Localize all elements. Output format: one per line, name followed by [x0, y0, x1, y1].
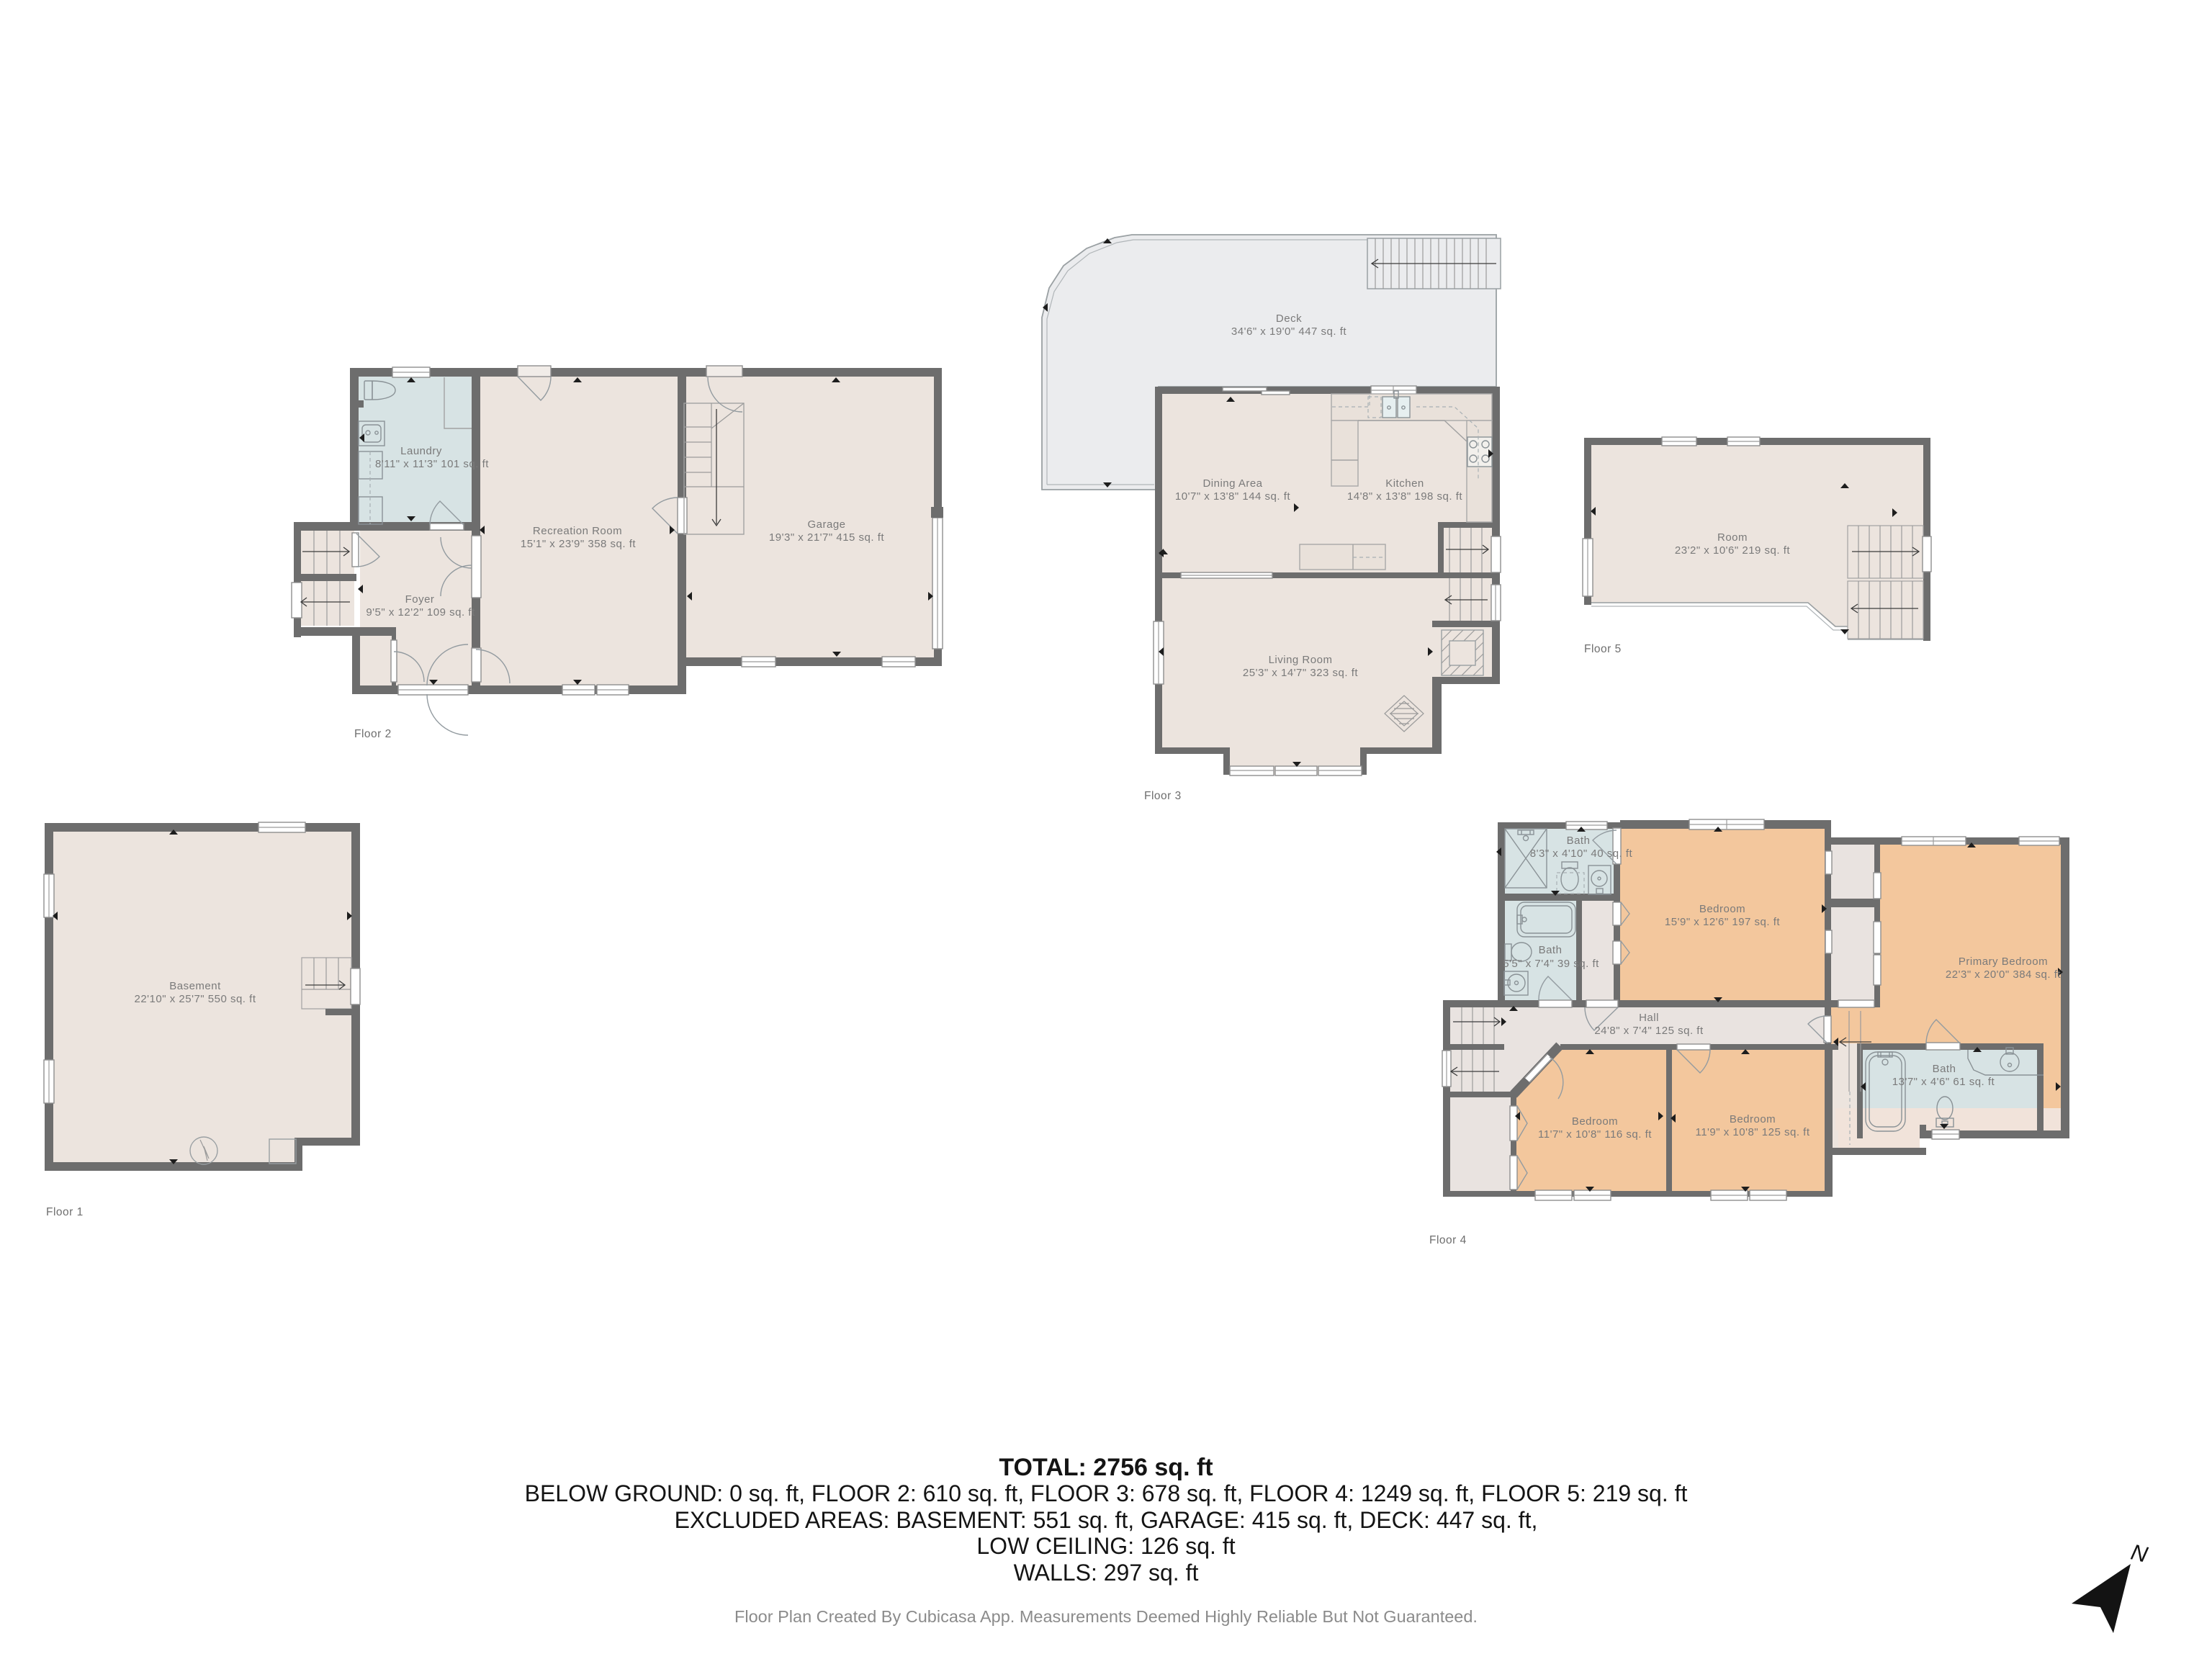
svg-text:13'7" x 4'6" 61 sq. ft: 13'7" x 4'6" 61 sq. ft — [1892, 1076, 1995, 1088]
svg-text:LOW CEILING: 126 sq. ft: LOW CEILING: 126 sq. ft — [976, 1533, 1235, 1559]
svg-text:11'7" x 10'8" 116 sq. ft: 11'7" x 10'8" 116 sq. ft — [1538, 1128, 1652, 1141]
svg-text:23'2" x 10'6" 219 sq. ft: 23'2" x 10'6" 219 sq. ft — [1675, 544, 1790, 557]
svg-text:22'10" x 25'7" 550 sq. ft: 22'10" x 25'7" 550 sq. ft — [135, 993, 256, 1005]
svg-text:Bath: Bath — [1539, 944, 1563, 956]
svg-text:24'8" x 7'4" 125 sq. ft: 24'8" x 7'4" 125 sq. ft — [1594, 1025, 1704, 1037]
svg-text:Kitchen: Kitchen — [1385, 477, 1424, 490]
svg-text:Floor 1: Floor 1 — [46, 1206, 84, 1218]
svg-text:Floor 5: Floor 5 — [1584, 643, 1622, 655]
svg-text:9'5" x 12'2" 109 sq. ft: 9'5" x 12'2" 109 sq. ft — [366, 606, 475, 619]
svg-text:EXCLUDED AREAS: BASEMENT: 551: EXCLUDED AREAS: BASEMENT: 551 sq. ft, GA… — [675, 1507, 1538, 1533]
svg-text:11'9" x 10'8" 125 sq. ft: 11'9" x 10'8" 125 sq. ft — [1695, 1126, 1809, 1138]
svg-text:Basement: Basement — [169, 980, 221, 992]
svg-text:10'7" x 13'8" 144 sq. ft: 10'7" x 13'8" 144 sq. ft — [1175, 490, 1290, 503]
svg-text:25'3" x 14'7" 323 sq. ft: 25'3" x 14'7" 323 sq. ft — [1243, 667, 1358, 679]
svg-text:Bedroom: Bedroom — [1699, 903, 1745, 915]
svg-text:22'3" x 20'0" 384 sq. ft: 22'3" x 20'0" 384 sq. ft — [1946, 968, 2061, 981]
svg-text:Floor 2: Floor 2 — [354, 728, 392, 740]
svg-text:8'3" x 4'10" 40 sq. ft: 8'3" x 4'10" 40 sq. ft — [1530, 848, 1633, 860]
svg-text:Foyer: Foyer — [405, 593, 435, 606]
svg-text:Primary Bedroom: Primary Bedroom — [1959, 956, 2048, 968]
svg-text:15'9" x 12'6" 197 sq. ft: 15'9" x 12'6" 197 sq. ft — [1665, 916, 1780, 928]
svg-text:Bedroom: Bedroom — [1730, 1113, 1776, 1125]
svg-text:Floor 3: Floor 3 — [1144, 790, 1182, 802]
svg-text:15'1" x 23'9" 358 sq. ft: 15'1" x 23'9" 358 sq. ft — [521, 538, 636, 550]
svg-text:Room: Room — [1717, 531, 1748, 544]
svg-text:Bath: Bath — [1933, 1063, 1956, 1075]
svg-text:Hall: Hall — [1639, 1012, 1659, 1024]
svg-text:Floor 4: Floor 4 — [1429, 1234, 1467, 1246]
svg-text:19'3" x 21'7" 415 sq. ft: 19'3" x 21'7" 415 sq. ft — [769, 531, 884, 544]
svg-text:Laundry: Laundry — [400, 445, 442, 457]
svg-text:8'11" x 11'3" 101 sq. ft: 8'11" x 11'3" 101 sq. ft — [375, 458, 489, 470]
svg-text:BELOW GROUND: 0 sq. ft, FLOOR: BELOW GROUND: 0 sq. ft, FLOOR 2: 610 sq.… — [525, 1480, 1688, 1506]
svg-text:TOTAL: 2756 sq. ft: TOTAL: 2756 sq. ft — [999, 1454, 1213, 1481]
svg-text:5'5" x 7'4" 39 sq. ft: 5'5" x 7'4" 39 sq. ft — [1503, 958, 1599, 970]
svg-text:Recreation Room: Recreation Room — [533, 525, 622, 537]
svg-text:Dining Area: Dining Area — [1202, 477, 1262, 490]
svg-text:Living Room: Living Room — [1269, 654, 1333, 666]
svg-text:WALLS: 297 sq. ft: WALLS: 297 sq. ft — [1014, 1560, 1199, 1586]
svg-text:34'6" x 19'0" 447 sq. ft: 34'6" x 19'0" 447 sq. ft — [1231, 325, 1346, 338]
svg-text:Floor Plan Created By Cubicasa: Floor Plan Created By Cubicasa App. Meas… — [734, 1607, 1478, 1626]
svg-text:Deck: Deck — [1276, 313, 1302, 325]
svg-text:14'8" x 13'8" 198 sq. ft: 14'8" x 13'8" 198 sq. ft — [1347, 490, 1462, 503]
svg-text:Garage: Garage — [807, 518, 845, 531]
svg-text:Bath: Bath — [1567, 835, 1591, 847]
svg-text:Bedroom: Bedroom — [1572, 1115, 1618, 1128]
